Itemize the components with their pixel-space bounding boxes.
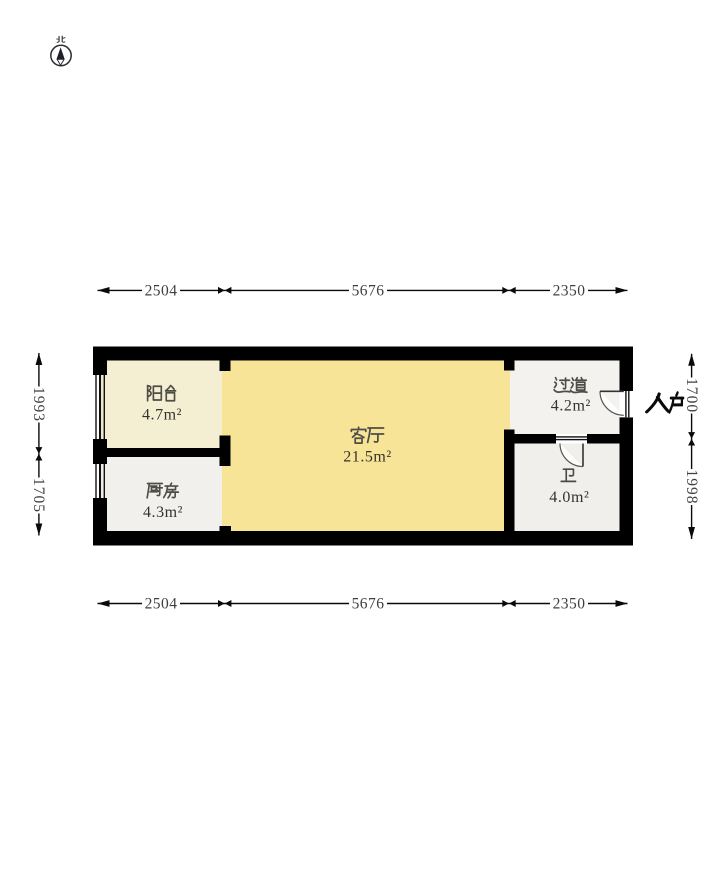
svg-text:1993: 1993 — [30, 387, 47, 422]
svg-text:2504: 2504 — [145, 596, 178, 613]
svg-text:21.5m²: 21.5m² — [343, 449, 392, 466]
svg-text:4.0m²: 4.0m² — [549, 489, 589, 506]
svg-text:5676: 5676 — [352, 596, 385, 613]
svg-text:1705: 1705 — [30, 478, 47, 513]
svg-text:4.2m²: 4.2m² — [551, 398, 591, 415]
svg-text:1998: 1998 — [683, 469, 700, 504]
svg-text:2504: 2504 — [145, 282, 178, 299]
svg-text:2350: 2350 — [553, 282, 586, 299]
svg-text:4.7m²: 4.7m² — [142, 407, 182, 424]
svg-text:4.3m²: 4.3m² — [143, 504, 183, 521]
svg-text:5676: 5676 — [352, 282, 385, 299]
svg-text:1700: 1700 — [683, 378, 700, 413]
svg-text:2350: 2350 — [553, 596, 586, 613]
